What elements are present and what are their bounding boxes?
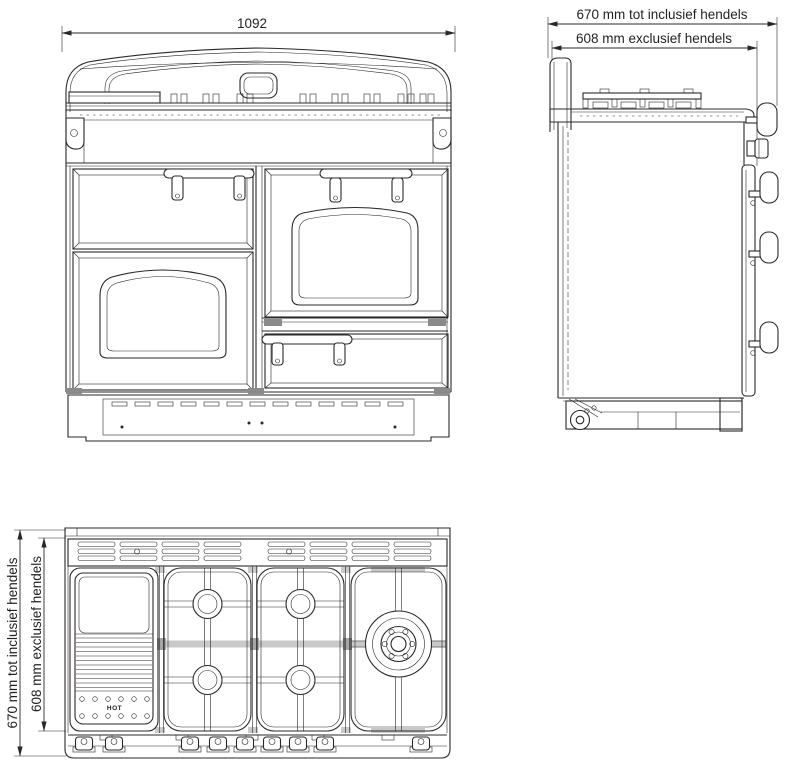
side-depth-excl-label: 608 mm exclusief hendels	[576, 31, 732, 46]
top-hob: HOT	[68, 566, 447, 752]
side-backsplash	[550, 58, 571, 132]
side-base	[558, 398, 744, 431]
side-body	[558, 122, 755, 398]
front-width-label: 1092	[237, 16, 267, 31]
top-burner-section-left	[164, 568, 251, 731]
front-scroll-ends	[66, 118, 451, 149]
grill-door-handle	[164, 169, 254, 200]
plinth-vent-slots	[112, 402, 403, 406]
top-griddle: HOT	[70, 568, 158, 731]
top-wok-burner-section	[351, 568, 446, 731]
range-cooker-dimension-drawing: 1092	[0, 0, 789, 765]
top-depth-dimensions: 670 mm tot inclusief hendels 608 mm excl…	[5, 530, 66, 756]
side-view: 670 mm tot inclusief hendels 608 mm excl…	[548, 7, 778, 431]
side-control-knob	[747, 139, 768, 158]
front-storage-drawer	[262, 318, 448, 388]
front-view: 1092	[62, 16, 455, 441]
technical-drawing-canvas: 1092	[0, 0, 789, 765]
front-left-oven-door	[73, 252, 253, 390]
top-depth-incl-label: 670 mm tot inclusief hendels	[5, 557, 20, 728]
front-width-dimension: 1092	[62, 16, 455, 52]
front-grill-door	[73, 169, 254, 249]
front-plinth	[66, 388, 451, 441]
drawer-handle	[262, 335, 352, 365]
top-control-knobs	[73, 737, 432, 752]
side-door-panel	[742, 165, 755, 396]
front-right-oven-door	[265, 169, 448, 317]
griddle-hot-label: HOT	[107, 705, 122, 712]
top-view: 670 mm tot inclusief hendels 608 mm excl…	[5, 528, 450, 758]
side-depth-dimensions: 670 mm tot inclusief hendels 608 mm excl…	[548, 7, 777, 166]
right-oven-window	[292, 208, 418, 306]
top-burner-section-right	[257, 568, 344, 731]
top-vent-strip	[68, 539, 447, 566]
left-oven-window	[100, 270, 226, 358]
top-depth-excl-label: 608 mm exclusief hendels	[29, 556, 44, 712]
side-towel-rail	[746, 103, 777, 136]
side-depth-incl-label: 670 mm tot inclusief hendels	[576, 7, 747, 22]
side-hob	[550, 89, 754, 122]
right-oven-handle	[320, 169, 412, 202]
front-fascia	[66, 120, 451, 166]
front-frame	[66, 110, 451, 392]
